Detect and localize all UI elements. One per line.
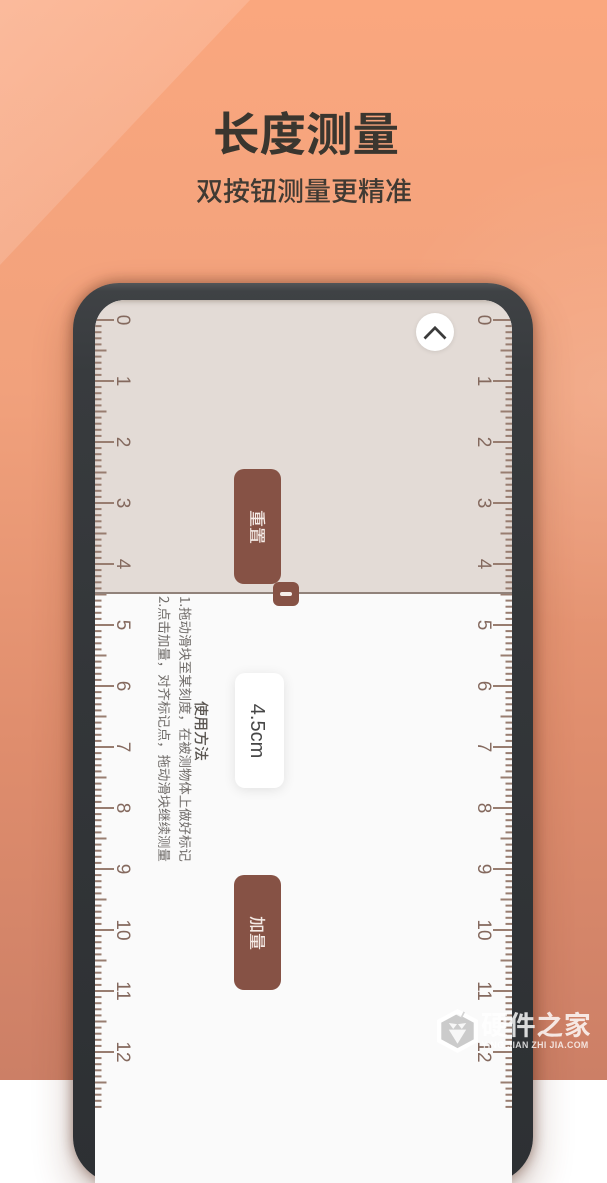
svg-text:3: 3	[112, 498, 133, 509]
svg-text:4: 4	[112, 559, 133, 570]
svg-text:6: 6	[473, 681, 494, 692]
svg-text:2: 2	[112, 437, 133, 448]
svg-text:1: 1	[112, 376, 133, 387]
svg-text:9: 9	[473, 864, 494, 875]
svg-text:0: 0	[112, 315, 133, 326]
svg-text:3: 3	[473, 498, 494, 509]
svg-text:7: 7	[473, 742, 494, 753]
svg-text:8: 8	[112, 803, 133, 814]
svg-text:10: 10	[112, 919, 133, 940]
svg-text:7: 7	[112, 742, 133, 753]
svg-text:4: 4	[473, 559, 494, 570]
svg-text:11: 11	[112, 981, 133, 1001]
svg-text:0: 0	[473, 315, 494, 326]
svg-text:10: 10	[473, 919, 494, 940]
svg-text:2: 2	[473, 437, 494, 448]
svg-text:9: 9	[112, 864, 133, 875]
svg-text:12: 12	[112, 1041, 133, 1062]
svg-text:5: 5	[473, 620, 494, 631]
svg-text:6: 6	[112, 681, 133, 692]
svg-text:11: 11	[473, 981, 494, 1001]
svg-text:5: 5	[112, 620, 133, 631]
svg-text:1: 1	[473, 376, 494, 387]
svg-text:8: 8	[473, 803, 494, 814]
